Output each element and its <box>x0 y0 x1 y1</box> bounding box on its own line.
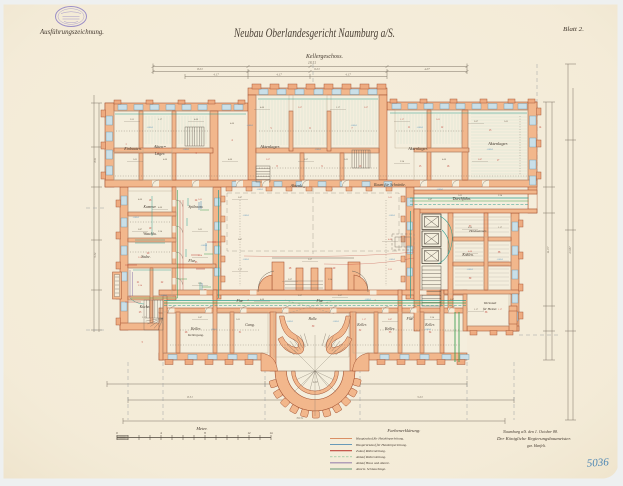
svg-text:Meter.: Meter. <box>195 426 207 431</box>
svg-text:Flur.: Flur. <box>406 317 414 321</box>
svg-text:Aktenlager.: Aktenlager. <box>487 141 508 146</box>
svg-text:-2.60-1: -2.60-1 <box>243 215 249 217</box>
svg-text:-2.60-1: -2.60-1 <box>389 215 395 217</box>
svg-text:Ablauf Röhrenleitung.: Ablauf Röhrenleitung. <box>355 455 386 459</box>
svg-text:-2.60-1: -2.60-1 <box>417 127 423 129</box>
svg-text:-2.60-1: -2.60-1 <box>389 259 395 261</box>
svg-text:14: 14 <box>270 431 274 435</box>
svg-text:Lager.: Lager. <box>154 151 166 156</box>
svg-text:Halle.: Halle. <box>308 317 318 321</box>
svg-text:Aktenlager.: Aktenlager. <box>407 146 428 151</box>
svg-text:Ausführungszeichnung.: Ausführungszeichnung. <box>39 27 104 36</box>
svg-text:Raum für Schränke.: Raum für Schränke. <box>373 182 406 187</box>
svg-text:8.91: 8.91 <box>94 157 97 162</box>
svg-text:5.01: 5.01 <box>236 319 240 321</box>
svg-text:Kohlen.: Kohlen. <box>461 253 473 257</box>
svg-text:5.01: 5.01 <box>133 159 137 161</box>
svg-text:-2.60-1: -2.60-1 <box>243 259 249 261</box>
svg-text:-2.60-1: -2.60-1 <box>161 295 167 297</box>
svg-text:4.17: 4.17 <box>213 73 219 77</box>
svg-text:Aborte. Schlauchlage.: Aborte. Schlauchlage. <box>355 467 386 471</box>
svg-text:Gang.: Gang. <box>245 323 254 327</box>
svg-text:Akten=: Akten= <box>153 144 167 149</box>
svg-text:-2.60-1: -2.60-1 <box>315 149 321 151</box>
svg-text:Der Königliche Regierungsbaume: Der Königliche Regierungsbaumeister. <box>496 436 571 441</box>
svg-text:Zulauf Röhrenleitung.: Zulauf Röhrenleitung. <box>356 449 386 453</box>
svg-text:Kellergeschoss.: Kellergeschoss. <box>305 53 343 60</box>
svg-text:Flur.: Flur. <box>236 299 244 303</box>
svg-text:-2.60-1: -2.60-1 <box>247 125 253 127</box>
svg-text:8.01: 8.01 <box>197 67 203 71</box>
svg-text:Werkstatt: Werkstatt <box>484 301 498 305</box>
svg-text:9.34: 9.34 <box>94 252 97 257</box>
svg-text:-2.60-1: -2.60-1 <box>183 149 189 151</box>
svg-text:Kellergang.: Kellergang. <box>187 333 204 337</box>
svg-text:-2.60-1: -2.60-1 <box>365 299 371 301</box>
svg-text:Flur.: Flur. <box>187 259 195 263</box>
svg-text:Spülraum.: Spülraum. <box>189 205 204 209</box>
svg-text:Stube.: Stube. <box>141 255 150 259</box>
svg-text:4.07: 4.07 <box>424 67 430 71</box>
svg-text:Heizkammer.: Heizkammer. <box>468 229 487 233</box>
svg-text:-2.60-1: -2.60-1 <box>333 321 339 323</box>
svg-text:Hauptrücklauf für Heizkörperle: Hauptrücklauf für Heizkörperleitung. <box>355 443 407 447</box>
svg-text:gez. Hanfelt.: gez. Hanfelt. <box>527 443 546 448</box>
svg-text:-2.60-1: -2.60-1 <box>147 127 153 129</box>
svg-text:-2.60-1: -2.60-1 <box>467 269 473 271</box>
svg-text:3.51: 3.51 <box>388 269 392 271</box>
svg-text:Farbenerklärung:: Farbenerklärung: <box>386 428 421 433</box>
svg-text:5.01: 5.01 <box>198 199 202 201</box>
svg-text:Keller.: Keller. <box>384 327 395 331</box>
svg-text:-2.60-1: -2.60-1 <box>497 259 503 261</box>
svg-text:für Heizer.: für Heizer. <box>483 307 498 311</box>
svg-text:-2.60-1: -2.60-1 <box>487 149 493 151</box>
svg-text:23.87: 23.87 <box>568 246 572 254</box>
svg-text:5.01: 5.01 <box>417 395 423 399</box>
svg-text:Blatt 2.: Blatt 2. <box>563 26 584 33</box>
svg-text:Einbauten.: Einbauten. <box>123 146 141 151</box>
svg-text:Aktenlager.: Aktenlager. <box>259 144 280 149</box>
svg-text:5036: 5036 <box>586 456 609 470</box>
svg-text:Keller.: Keller. <box>356 323 367 327</box>
svg-text:4.60: 4.60 <box>313 381 318 384</box>
svg-text:5.01: 5.01 <box>436 119 440 121</box>
svg-text:Neubau Oberlandesgericht Naumb: Neubau Oberlandesgericht Naumburg a/S. <box>233 26 395 40</box>
svg-text:Keller.: Keller. <box>424 323 435 327</box>
svg-text:-2.60-1: -2.60-1 <box>133 217 139 219</box>
svg-text:3.51: 3.51 <box>130 119 134 121</box>
svg-text:-2.60-1: -2.60-1 <box>211 329 217 331</box>
svg-text:Ablauf Haus und Aborte.: Ablauf Haus und Aborte. <box>355 461 390 465</box>
svg-text:11.07: 11.07 <box>546 246 550 253</box>
svg-text:5.01: 5.01 <box>504 121 508 123</box>
svg-text:5.01: 5.01 <box>198 229 202 231</box>
svg-text:12: 12 <box>248 431 252 435</box>
svg-text:18.51: 18.51 <box>308 61 316 65</box>
svg-text:Küche.: Küche. <box>139 305 151 309</box>
svg-text:4.17: 4.17 <box>345 73 351 77</box>
svg-text:Waschku.: Waschku. <box>143 232 157 236</box>
svg-text:-2.60-1: -2.60-1 <box>287 321 293 323</box>
svg-text:6.01: 6.01 <box>314 67 320 71</box>
svg-text:Durchfahrt.: Durchfahrt. <box>452 196 472 201</box>
svg-text:5.01: 5.01 <box>388 197 392 199</box>
svg-text:5.01: 5.01 <box>344 159 348 161</box>
svg-text:-2.60-1: -2.60-1 <box>257 189 263 191</box>
svg-text:8.51: 8.51 <box>187 395 193 399</box>
svg-text:Flur.: Flur. <box>316 299 324 303</box>
svg-text:Naumburg a/S. den 1. October 8: Naumburg a/S. den 1. October 88. <box>502 429 558 434</box>
svg-text:Hauptzulauf für Heizkörperleit: Hauptzulauf für Heizkörperleitung. <box>355 437 404 441</box>
svg-text:Keller.: Keller. <box>190 327 201 331</box>
svg-text:4.17: 4.17 <box>276 73 282 77</box>
svg-text:Kammer.: Kammer. <box>143 205 157 209</box>
svg-text:-2.60-1: -2.60-1 <box>437 189 443 191</box>
